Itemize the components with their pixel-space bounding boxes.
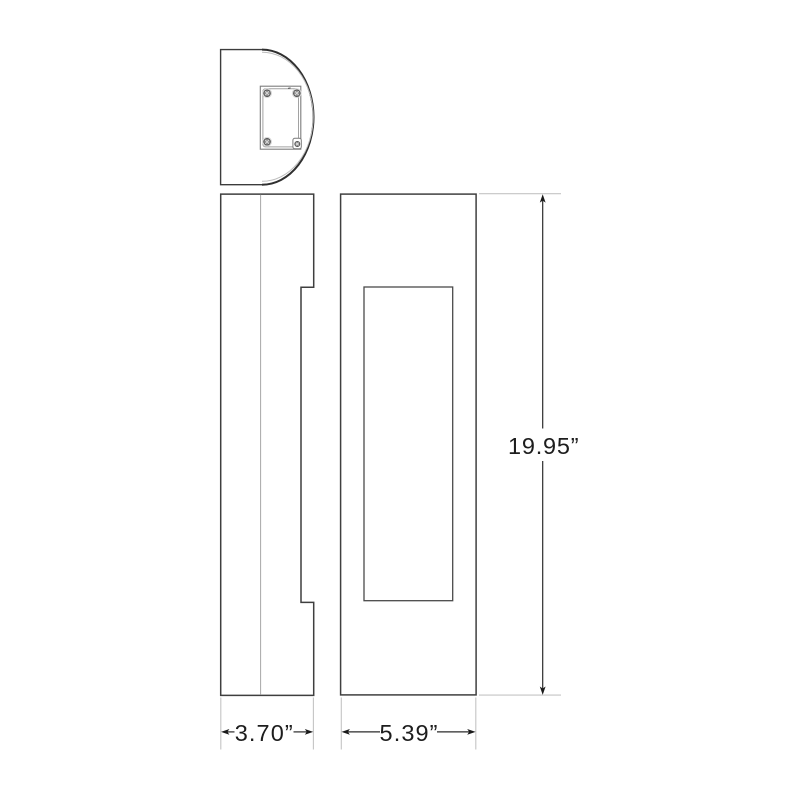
svg-text:19.95”: 19.95” xyxy=(508,433,579,459)
svg-text:5.39”: 5.39” xyxy=(380,720,439,746)
svg-text:3.70”: 3.70” xyxy=(235,720,294,746)
